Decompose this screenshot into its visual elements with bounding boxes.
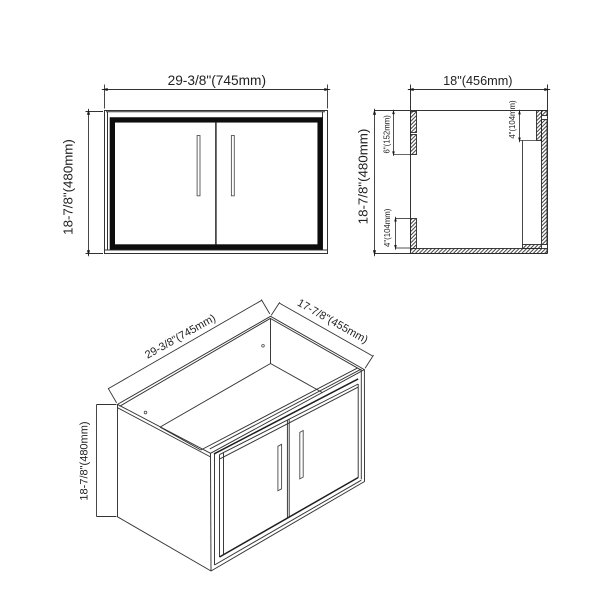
svg-text:18-7/8"(480mm): 18-7/8"(480mm) — [79, 421, 91, 500]
svg-text:29-3/8"(745mm): 29-3/8"(745mm) — [168, 73, 266, 88]
svg-text:18"(456mm): 18"(456mm) — [443, 74, 512, 88]
svg-text:6"(152mm): 6"(152mm) — [382, 115, 391, 154]
svg-text:4"(104mm): 4"(104mm) — [508, 100, 517, 139]
svg-text:4"(104mm): 4"(104mm) — [383, 208, 392, 247]
svg-text:18-7/8"(480mm): 18-7/8"(480mm) — [61, 139, 76, 235]
svg-text:18-7/8"(480mm): 18-7/8"(480mm) — [356, 129, 371, 225]
